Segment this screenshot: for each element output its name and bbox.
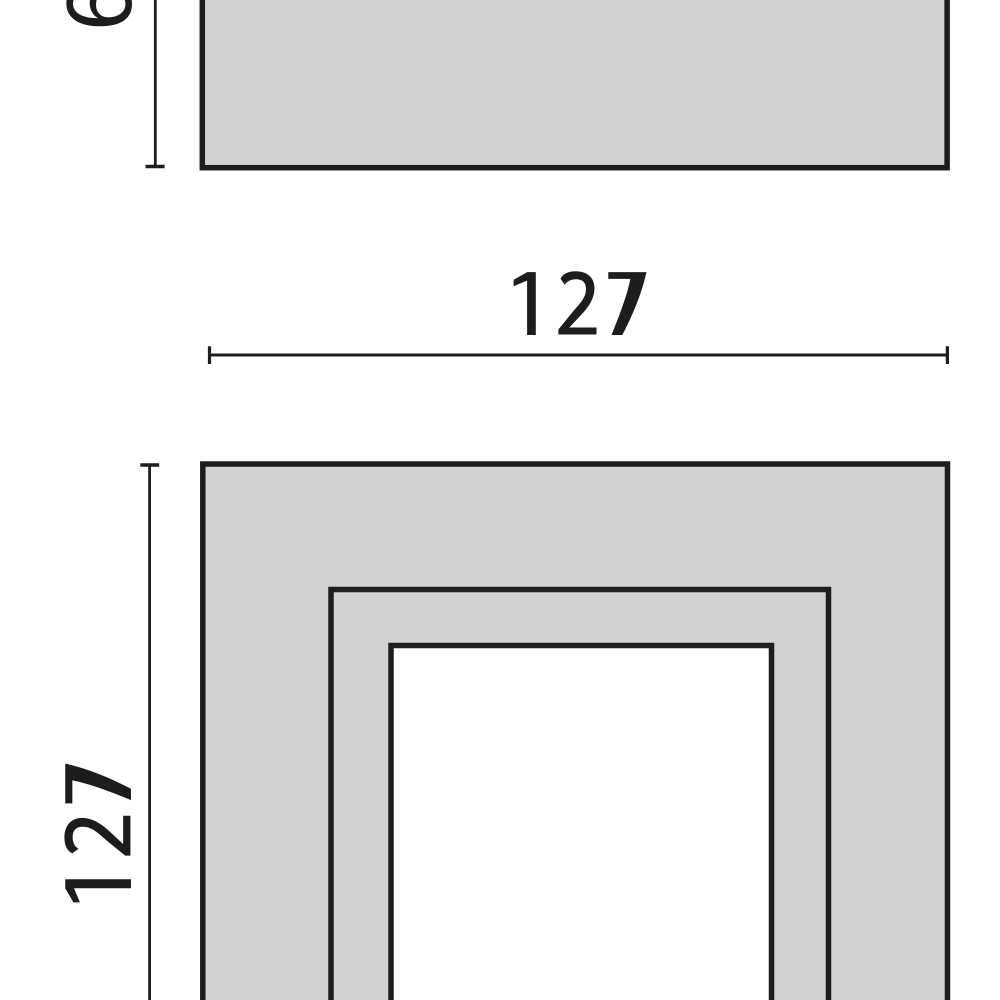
- svg-text:67: 67: [47, 0, 151, 31]
